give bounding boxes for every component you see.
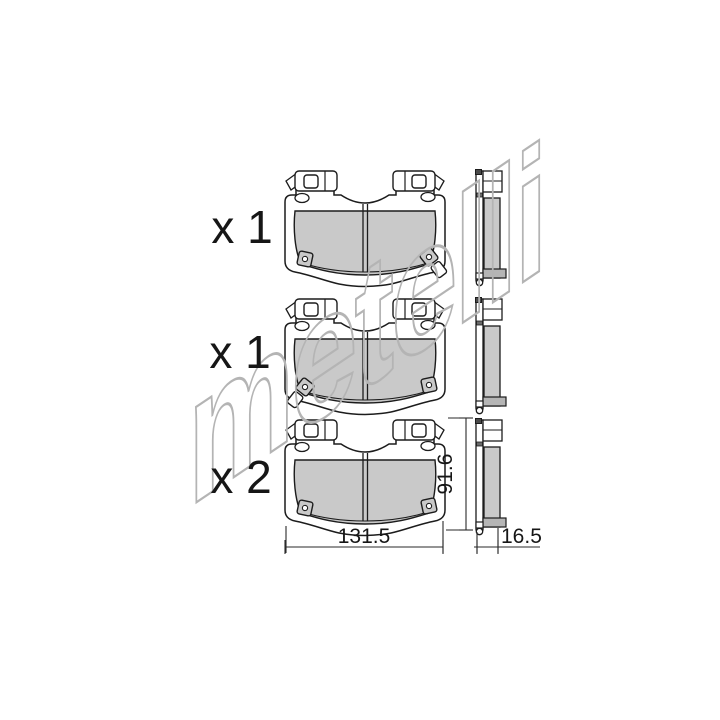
quantity-label-3: x 2	[210, 451, 271, 503]
dimension-height-label: 91.6	[434, 454, 457, 495]
quantity-label-2: x 1	[209, 326, 270, 378]
dimension-thickness-label: 16.5	[501, 525, 542, 548]
pad3-right-wear-square	[421, 498, 438, 515]
technical-drawing-canvas: metelli x 1 x 1 x 2 131.5 91.6 16.5	[0, 0, 720, 720]
dimension-width-label: 131.5	[338, 525, 391, 548]
brake-pad-diagram: metelli x 1 x 1 x 2 131.5 91.6 16.5	[0, 0, 720, 720]
quantity-label-1: x 1	[211, 201, 272, 253]
pad-side-view-3	[476, 419, 507, 535]
pad3-left-wear-square	[297, 500, 314, 517]
